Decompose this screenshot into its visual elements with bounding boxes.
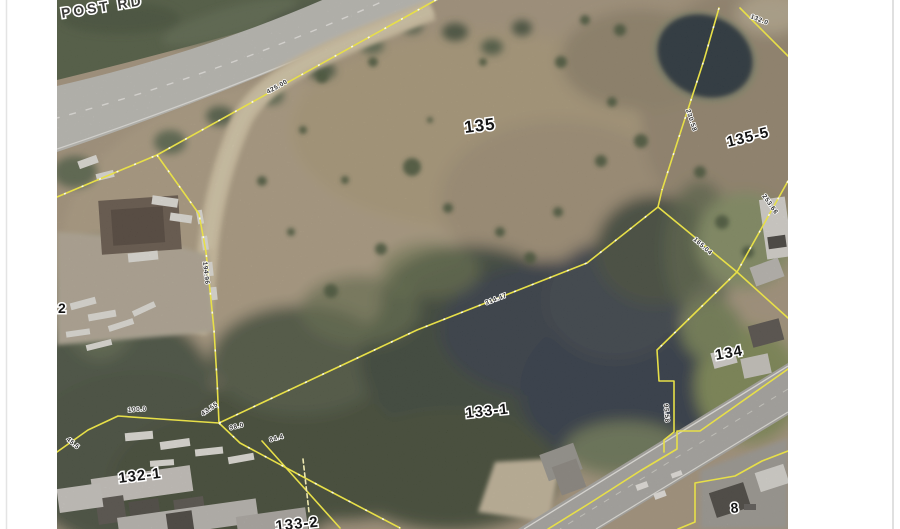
aerial-parcel-map-screenshot: 425.00 230.58 194.96 132.0 100.0 43.55 9… — [0, 0, 900, 529]
terrain-grain-light — [57, 0, 788, 529]
parcel-label-8: 8 — [730, 499, 740, 516]
dim-label: 95.58 — [662, 404, 670, 423]
map-content: 425.00 230.58 194.96 132.0 100.0 43.55 9… — [20, 0, 830, 529]
parcel-label-135: 135 — [463, 114, 496, 137]
aerial-map: 425.00 230.58 194.96 132.0 100.0 43.55 9… — [0, 0, 900, 529]
parcel-label-2: 2 — [58, 300, 67, 316]
dim-label: 100.0 — [128, 406, 147, 414]
